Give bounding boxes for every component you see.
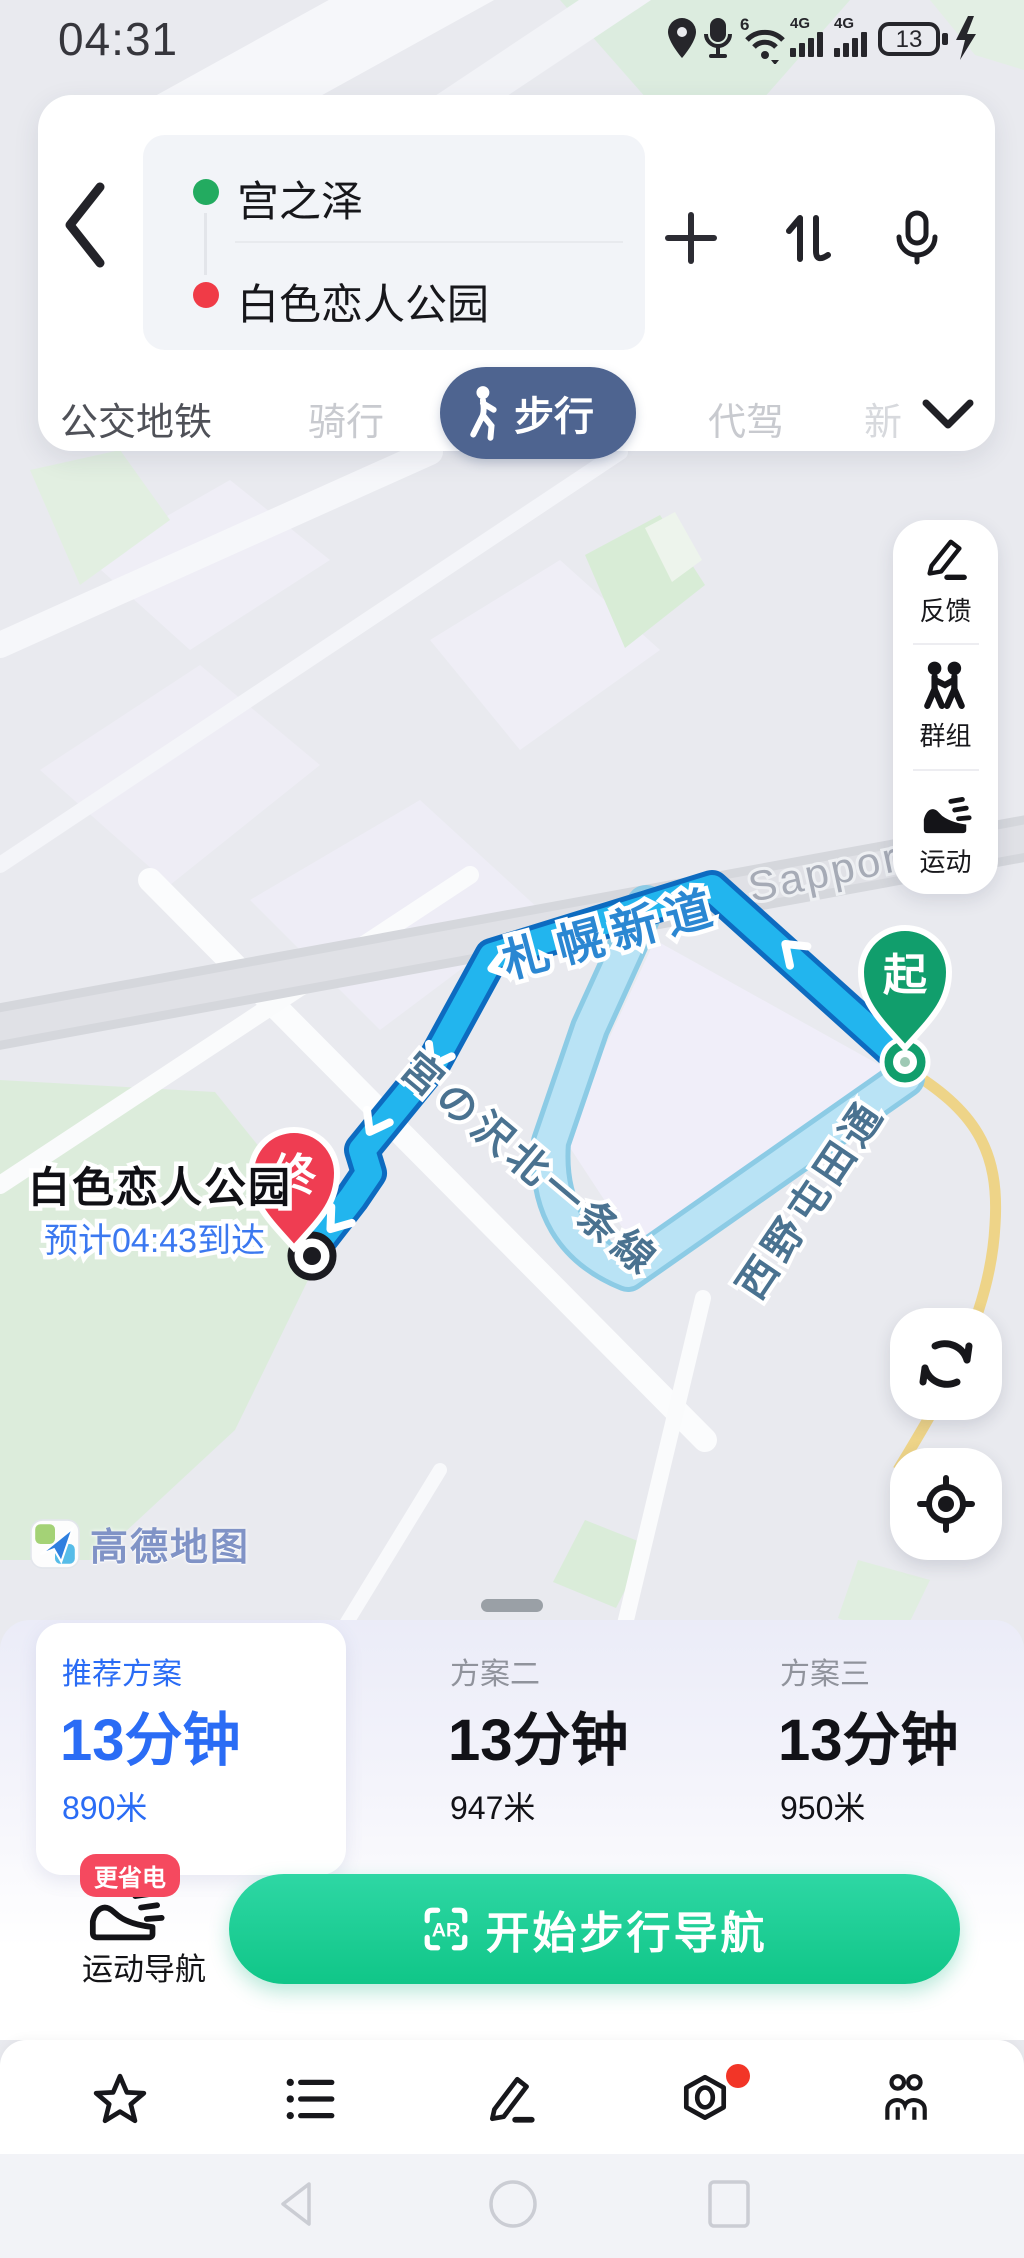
swap-icon: [789, 218, 828, 259]
android-back-button[interactable]: [273, 2178, 321, 2230]
battery-level: 13: [896, 26, 923, 53]
sport-shoe-icon: [919, 786, 973, 836]
favorite-button[interactable]: [93, 2072, 147, 2126]
route-detail-button[interactable]: [283, 2072, 337, 2126]
locate-icon: [915, 1473, 977, 1535]
refresh-icon: [915, 1333, 977, 1395]
sport-button[interactable]: 运动: [919, 786, 973, 879]
signal-icon-sim1: 4G: [790, 15, 823, 57]
add-stop-button[interactable]: [660, 207, 722, 269]
origin-input[interactable]: 宫之泽: [237, 168, 617, 218]
ar-text: AR: [431, 1919, 460, 1941]
sport-nav-shoe-icon: [93, 1894, 162, 1938]
start-pin-glyph: 起: [883, 951, 928, 1000]
location-icon: [668, 18, 696, 58]
sheet-drag-handle[interactable]: [481, 1599, 543, 1612]
star-icon: [96, 2076, 144, 2121]
settings-button[interactable]: [678, 2072, 732, 2126]
locate-button[interactable]: [890, 1448, 1002, 1560]
back-chevron-icon: [70, 187, 100, 263]
group-people-icon: [920, 660, 970, 710]
divider: [913, 769, 979, 771]
team-button[interactable]: [878, 2072, 932, 2126]
feedback-label: 反馈: [919, 591, 971, 628]
map-tool-panel: 反馈 群组 运动: [893, 520, 998, 894]
settings-gear-icon: [686, 2077, 723, 2118]
svg-text:4G: 4G: [790, 15, 810, 32]
amap-logo-text: 高德地图: [90, 1516, 250, 1571]
svg-text:6: 6: [740, 15, 749, 34]
destination-dot: [193, 282, 219, 308]
group-button[interactable]: 群组: [919, 660, 971, 753]
destination-map-label: 白色恋人公园: [28, 1164, 292, 1211]
amap-logo-icon: [30, 1519, 80, 1569]
start-walk-nav-button[interactable]: AR 开始步行导航: [229, 1874, 960, 1984]
ar-icon: AR: [422, 1905, 470, 1953]
feedback-button[interactable]: 反馈: [919, 535, 971, 628]
refresh-route-button[interactable]: [890, 1308, 1002, 1420]
tab-walking-label: 步行: [514, 384, 594, 442]
tab-cycling[interactable]: 骑行: [286, 395, 406, 451]
mic-status-icon: [706, 18, 730, 56]
tab-more-partial[interactable]: 新: [858, 395, 908, 451]
route-card: 宫之泽 白色恋人公园 公交地铁 骑行 步行: [38, 95, 995, 451]
io-connector: [204, 213, 207, 275]
sport-nav-label: 运动导航: [44, 1944, 244, 1989]
plan-label: 方案三: [780, 1649, 870, 1693]
edit-pencil-icon: [492, 2079, 531, 2120]
plan-distance: 890米: [62, 1783, 147, 1829]
amap-logo: 高德地图: [30, 1516, 250, 1571]
mic-icon: [899, 213, 935, 262]
power-save-badge: 更省电: [80, 1854, 180, 1897]
status-bar: 04:31 6 4G 4G: [0, 0, 1024, 78]
group-label: 群组: [919, 716, 971, 753]
plus-icon: [668, 215, 714, 261]
notification-dot: [726, 2064, 750, 2088]
plan-recommended[interactable]: 推荐方案 13分钟 890米: [36, 1623, 346, 1875]
tab-transit[interactable]: 公交地铁: [46, 395, 226, 451]
android-back-icon: [283, 2184, 309, 2224]
plan-label: 方案二: [450, 1649, 540, 1693]
plan-distance: 950米: [780, 1783, 865, 1829]
start-walk-nav-label: 开始步行导航: [486, 1897, 768, 1961]
android-home-button[interactable]: [487, 2178, 539, 2230]
route-plans-sheet: 推荐方案 13分钟 890米 方案二 13分钟 947米 方案三 13分钟 95…: [0, 1620, 1024, 2040]
plan-duration: 13分钟: [778, 1693, 959, 1777]
svg-text:4G: 4G: [834, 15, 854, 32]
swap-button[interactable]: [776, 207, 838, 269]
plan-duration: 13分钟: [60, 1693, 241, 1777]
plan-label: 推荐方案: [62, 1649, 182, 1693]
origin-dot: [193, 179, 219, 205]
signal-icon-sim2: 4G: [834, 15, 867, 57]
chevron-down-icon: [926, 403, 970, 425]
android-home-icon: [491, 2182, 535, 2226]
plan-distance: 947米: [450, 1783, 535, 1829]
sport-label: 运动: [919, 842, 971, 879]
bottom-toolbar: [0, 2040, 1024, 2154]
android-recents-button[interactable]: [706, 2178, 752, 2230]
android-recents-icon: [710, 2182, 748, 2226]
report-button[interactable]: [484, 2072, 538, 2126]
voice-search-button[interactable]: [886, 207, 948, 269]
route-inputs: 宫之泽 白色恋人公园: [143, 135, 645, 350]
plan-duration: 13分钟: [448, 1693, 629, 1777]
plan-2[interactable]: 方案二 13分钟 947米: [424, 1623, 684, 1875]
io-divider: [235, 241, 623, 243]
destination-input[interactable]: 白色恋人公园: [237, 271, 617, 321]
divider: [913, 643, 979, 645]
eta-label: 预计04:43到达: [44, 1222, 265, 1260]
back-button[interactable]: [54, 177, 126, 273]
battery-icon: 13: [880, 24, 948, 54]
tab-chauffeur[interactable]: 代驾: [686, 395, 806, 451]
expand-modes-button[interactable]: [918, 395, 978, 435]
group-icon: [887, 2076, 924, 2120]
status-time: 04:31: [58, 12, 178, 66]
feedback-pencil-icon: [920, 535, 970, 585]
charging-icon: [956, 16, 976, 60]
plan-3[interactable]: 方案三 13分钟 950米: [754, 1623, 1014, 1875]
android-nav-bar: [0, 2154, 1024, 2258]
tab-walking-selected[interactable]: 步行: [440, 367, 636, 459]
wifi6-icon: 6: [740, 15, 783, 64]
list-icon: [287, 2079, 332, 2120]
walk-icon: [464, 385, 504, 441]
